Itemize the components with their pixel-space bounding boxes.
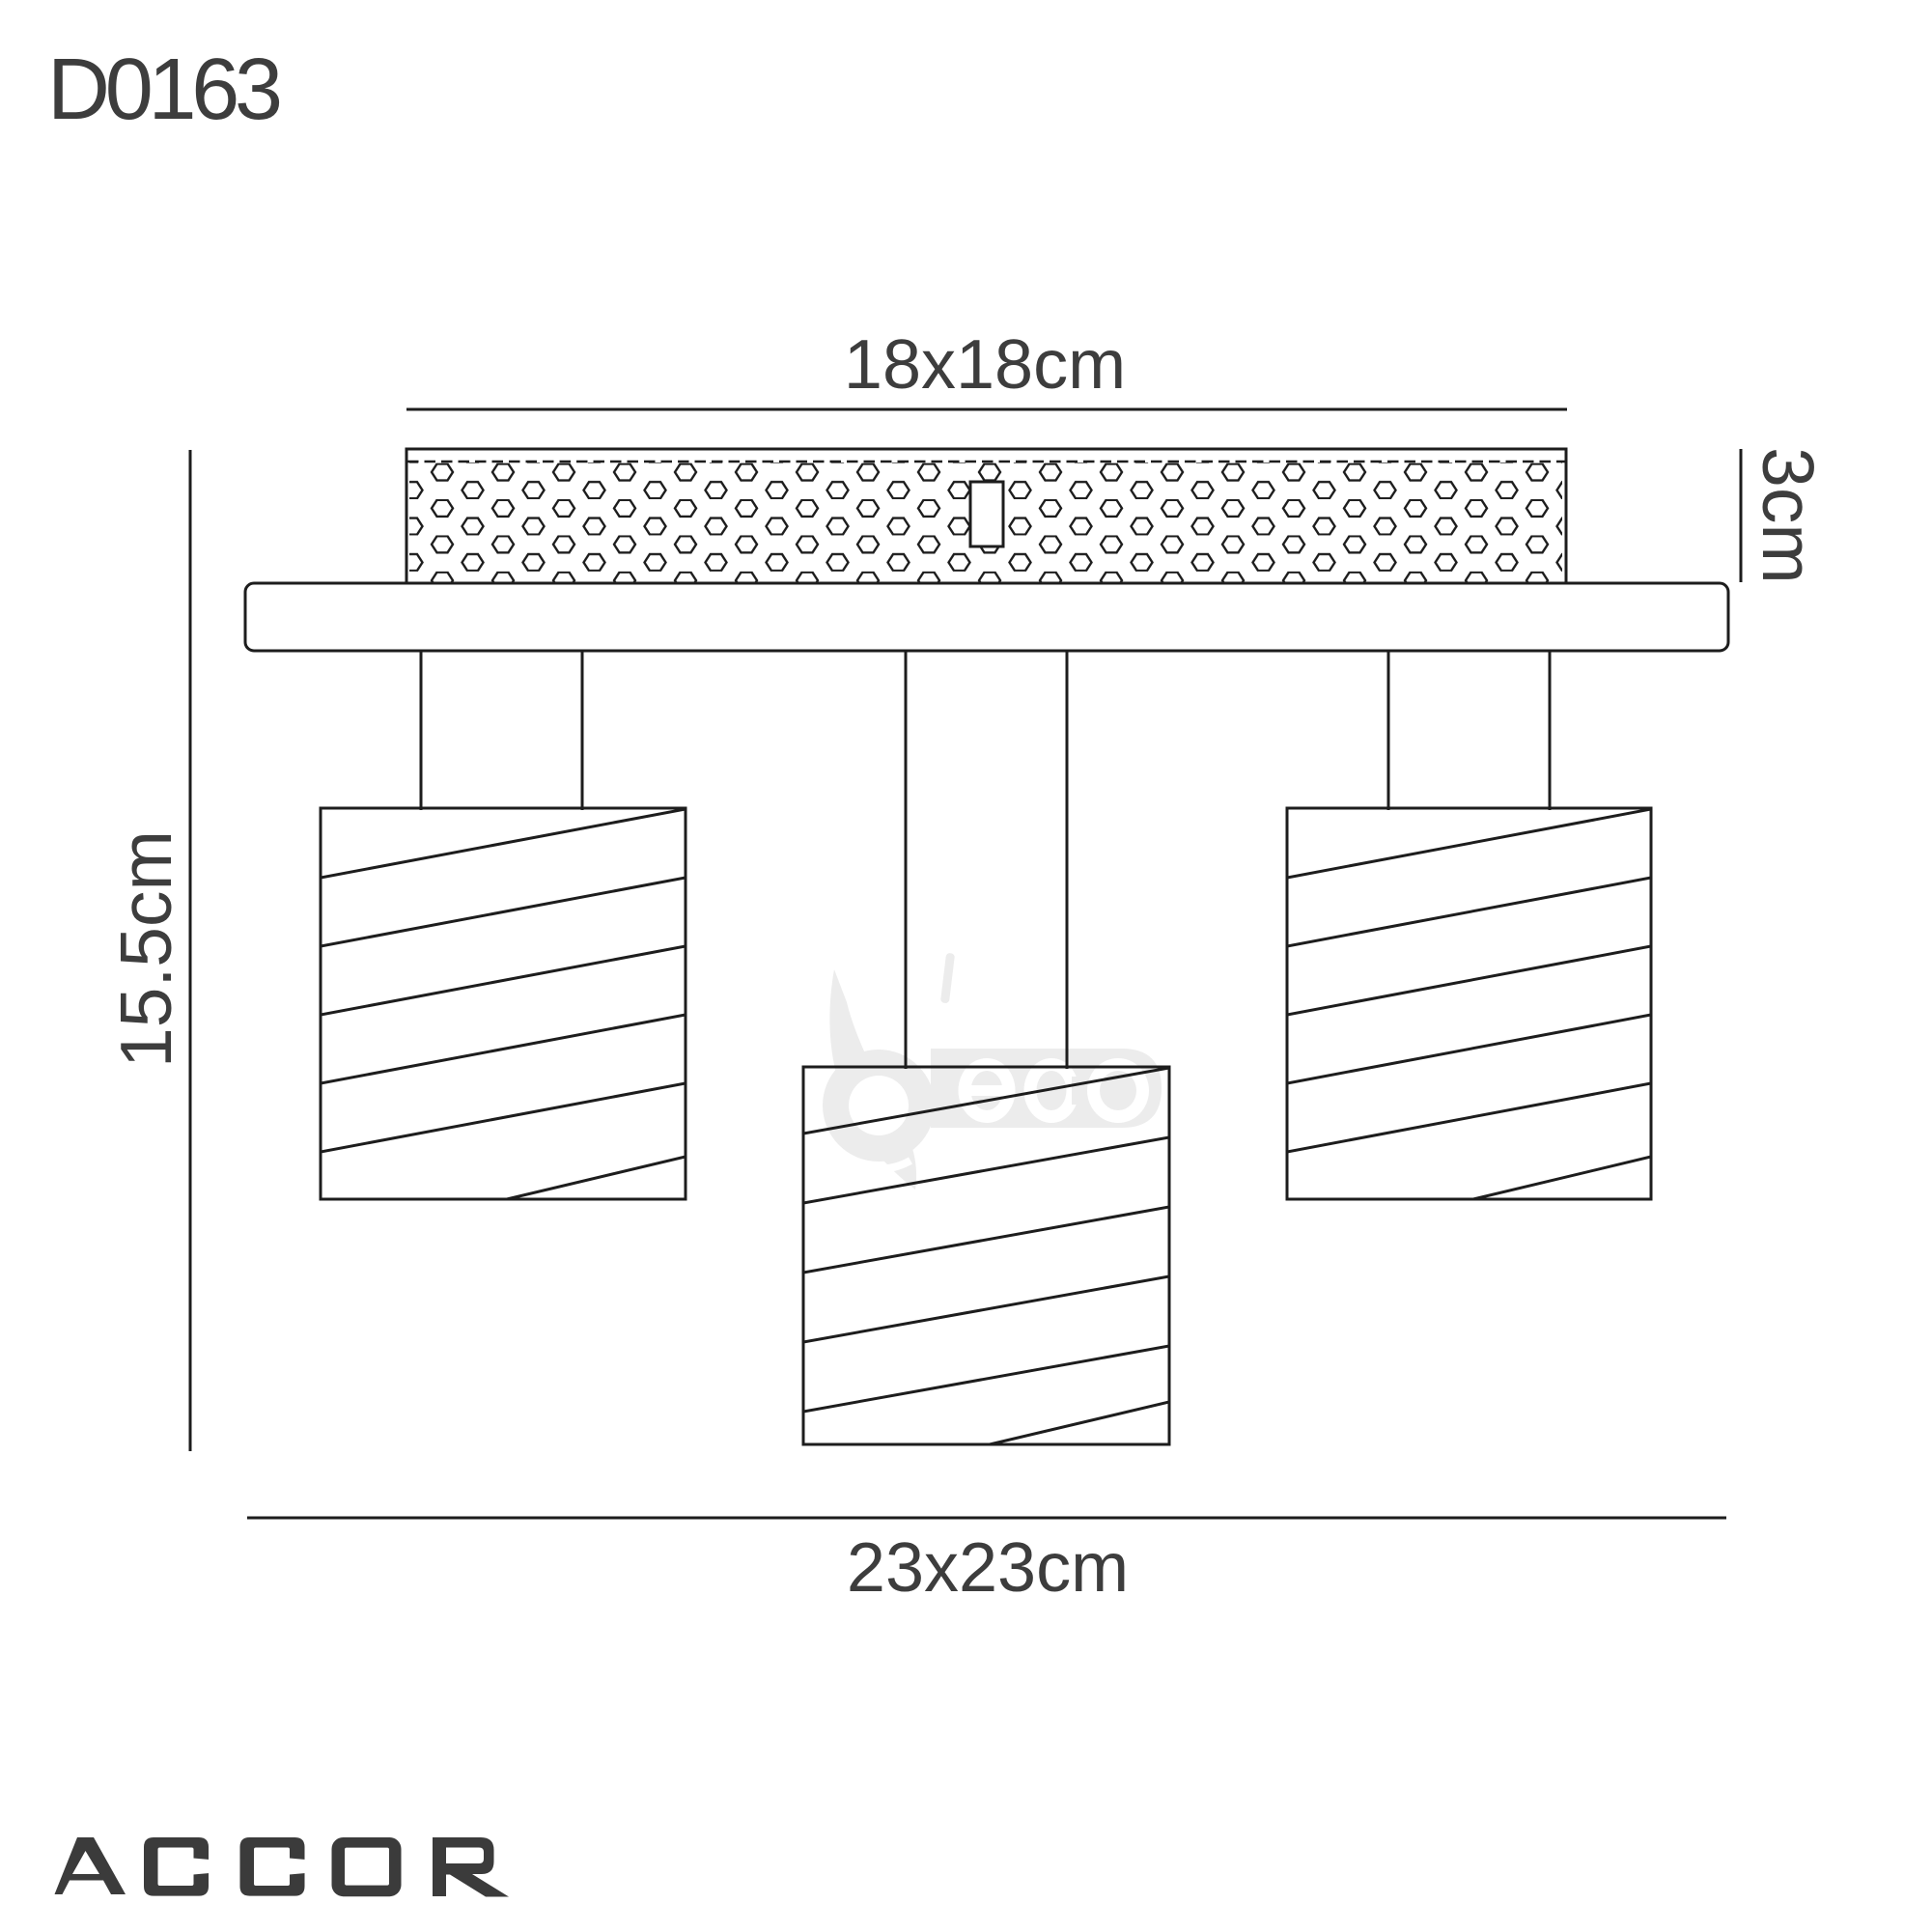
svg-text:D0163: D0163 (47, 42, 280, 138)
svg-text:3cm: 3cm (1748, 447, 1829, 584)
svg-text:15.5cm: 15.5cm (105, 830, 186, 1068)
svg-text:18x18cm: 18x18cm (844, 326, 1126, 404)
svg-text:23x23cm: 23x23cm (847, 1529, 1129, 1607)
